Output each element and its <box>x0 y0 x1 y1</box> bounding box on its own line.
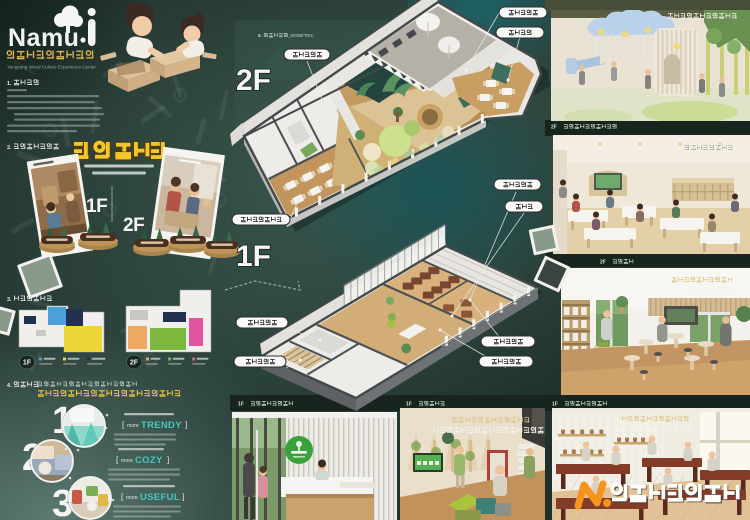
svg-text:]: ] <box>167 456 169 465</box>
svg-text:2F: 2F <box>236 64 271 97</box>
svg-text:1F: 1F <box>238 402 244 408</box>
svg-text:5.: 5. <box>258 33 262 38</box>
svg-text:2.: 2. <box>7 145 12 151</box>
svg-text:1.: 1. <box>7 81 12 87</box>
svg-text:]: ] <box>182 493 184 502</box>
svg-text:COZY: COZY <box>135 455 163 466</box>
svg-text:Yangyang Wood Culture Experien: Yangyang Wood Culture Experience Center <box>7 65 96 70</box>
svg-text:1F: 1F <box>86 196 107 217</box>
svg-text:4.: 4. <box>7 383 12 389</box>
svg-text:TRENDY: TRENDY <box>141 420 182 431</box>
svg-text:1F: 1F <box>552 402 558 408</box>
svg-text:more: more <box>126 495 138 501</box>
svg-text:2F: 2F <box>551 125 557 131</box>
svg-text:1F: 1F <box>23 360 32 367</box>
svg-text:2F: 2F <box>123 215 144 236</box>
svg-text:1F: 1F <box>236 240 271 273</box>
svg-text:3.: 3. <box>7 297 12 303</box>
svg-text:more: more <box>127 423 139 429</box>
svg-text:1F: 1F <box>406 402 412 408</box>
svg-text:2F: 2F <box>600 260 606 266</box>
svg-text:2F: 2F <box>130 360 139 367</box>
svg-text:]: ] <box>185 421 187 430</box>
svg-text:_ISOMETRIC: _ISOMETRIC <box>287 33 314 38</box>
svg-text:more: more <box>121 458 133 464</box>
svg-text:USEFUL: USEFUL <box>140 492 180 503</box>
